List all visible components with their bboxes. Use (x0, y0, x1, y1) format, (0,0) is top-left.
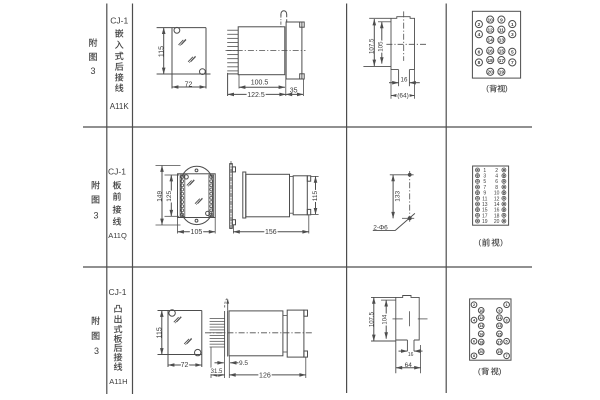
svg-text:9: 9 (498, 309, 500, 313)
svg-text:20: 20 (494, 219, 500, 225)
svg-text:A11H: A11H (109, 377, 127, 386)
svg-text:20: 20 (479, 350, 483, 354)
svg-text:19: 19 (482, 219, 488, 225)
svg-text:100.5: 100.5 (251, 80, 269, 87)
svg-text:105: 105 (377, 41, 384, 52)
svg-text:125: 125 (166, 190, 173, 201)
svg-text:6: 6 (473, 340, 475, 344)
svg-text:2-Φ6: 2-Φ6 (373, 224, 388, 231)
svg-text:7: 7 (506, 354, 508, 358)
svg-text:122.5: 122.5 (247, 92, 265, 99)
svg-text:7: 7 (511, 60, 514, 66)
svg-text:115: 115 (312, 190, 319, 201)
svg-text:19: 19 (497, 350, 501, 354)
svg-text:18: 18 (479, 340, 483, 344)
svg-text:15: 15 (499, 48, 505, 54)
svg-text:16: 16 (408, 352, 414, 358)
svg-text:3: 3 (511, 32, 514, 38)
svg-text:72: 72 (181, 362, 189, 369)
svg-text:CJ-1: CJ-1 (110, 16, 128, 26)
svg-text:9: 9 (500, 17, 503, 23)
svg-text:105: 105 (191, 229, 203, 236)
svg-text:104: 104 (383, 314, 389, 325)
svg-text:5: 5 (506, 340, 508, 344)
svg-text:3: 3 (90, 66, 95, 76)
svg-text:6: 6 (478, 50, 481, 56)
svg-text:107.5: 107.5 (368, 38, 375, 54)
svg-text:16: 16 (479, 332, 483, 336)
svg-text:19: 19 (499, 70, 505, 76)
svg-text:107.5: 107.5 (370, 311, 376, 327)
svg-text:(: ( (478, 366, 481, 376)
svg-text:16: 16 (401, 77, 408, 84)
svg-text:126: 126 (259, 372, 271, 379)
svg-text:2: 2 (473, 303, 475, 307)
svg-text:17: 17 (499, 58, 505, 64)
svg-text:3: 3 (506, 319, 508, 323)
svg-text:64: 64 (405, 362, 413, 369)
svg-text:8: 8 (478, 60, 481, 66)
svg-text:): ) (505, 83, 508, 93)
svg-text:115: 115 (157, 327, 164, 338)
svg-text:133: 133 (394, 190, 401, 201)
svg-text:(: ( (486, 83, 489, 93)
svg-text:): ) (499, 366, 502, 376)
svg-text:CJ-1: CJ-1 (108, 166, 126, 176)
svg-text:1: 1 (506, 303, 508, 307)
svg-text:11: 11 (499, 27, 504, 33)
svg-text:(: ( (478, 237, 481, 247)
svg-text:9.5: 9.5 (239, 360, 248, 367)
svg-text:3: 3 (94, 346, 99, 356)
svg-text:13: 13 (497, 324, 501, 328)
svg-text:1: 1 (511, 22, 514, 28)
svg-text:10: 10 (488, 17, 494, 23)
svg-text:31.5: 31.5 (211, 369, 223, 375)
svg-text:149: 149 (156, 190, 163, 201)
svg-text:2: 2 (478, 22, 481, 28)
svg-text:17: 17 (497, 340, 501, 344)
svg-text:4: 4 (478, 32, 481, 38)
svg-text:(64): (64) (397, 93, 409, 100)
svg-text:13: 13 (499, 38, 505, 44)
svg-text:CJ-1: CJ-1 (109, 287, 127, 297)
svg-text:11: 11 (497, 316, 501, 320)
svg-text:15: 15 (497, 332, 501, 336)
svg-text:5: 5 (511, 50, 514, 56)
svg-text:3: 3 (93, 211, 98, 221)
svg-text:35: 35 (290, 87, 298, 94)
svg-text:A11K: A11K (110, 102, 130, 111)
svg-text:14: 14 (488, 38, 494, 44)
svg-text:16: 16 (488, 48, 494, 54)
svg-text:18: 18 (488, 58, 494, 64)
svg-text:20: 20 (488, 70, 494, 76)
svg-text:10: 10 (479, 309, 483, 313)
svg-text:8: 8 (473, 354, 475, 358)
svg-text:72: 72 (185, 81, 193, 88)
svg-text:): ) (500, 237, 503, 247)
svg-text:12: 12 (479, 316, 483, 320)
svg-text:156: 156 (265, 229, 277, 236)
svg-text:12: 12 (488, 27, 494, 33)
svg-text:115: 115 (158, 46, 165, 57)
svg-text:A11Q: A11Q (108, 231, 127, 240)
